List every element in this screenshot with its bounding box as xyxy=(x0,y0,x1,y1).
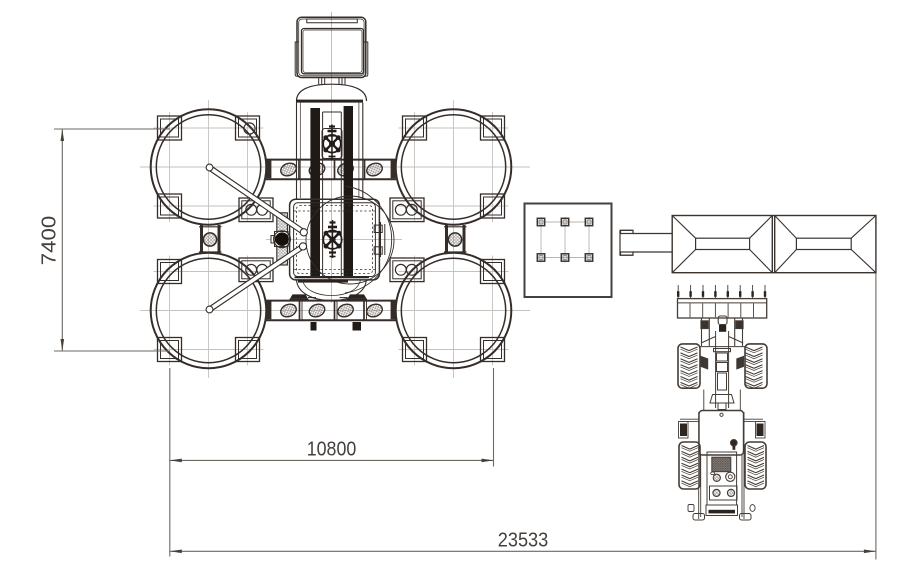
svg-text:10800: 10800 xyxy=(307,438,357,461)
svg-text:7400: 7400 xyxy=(38,216,61,266)
svg-text:23533: 23533 xyxy=(498,528,549,551)
